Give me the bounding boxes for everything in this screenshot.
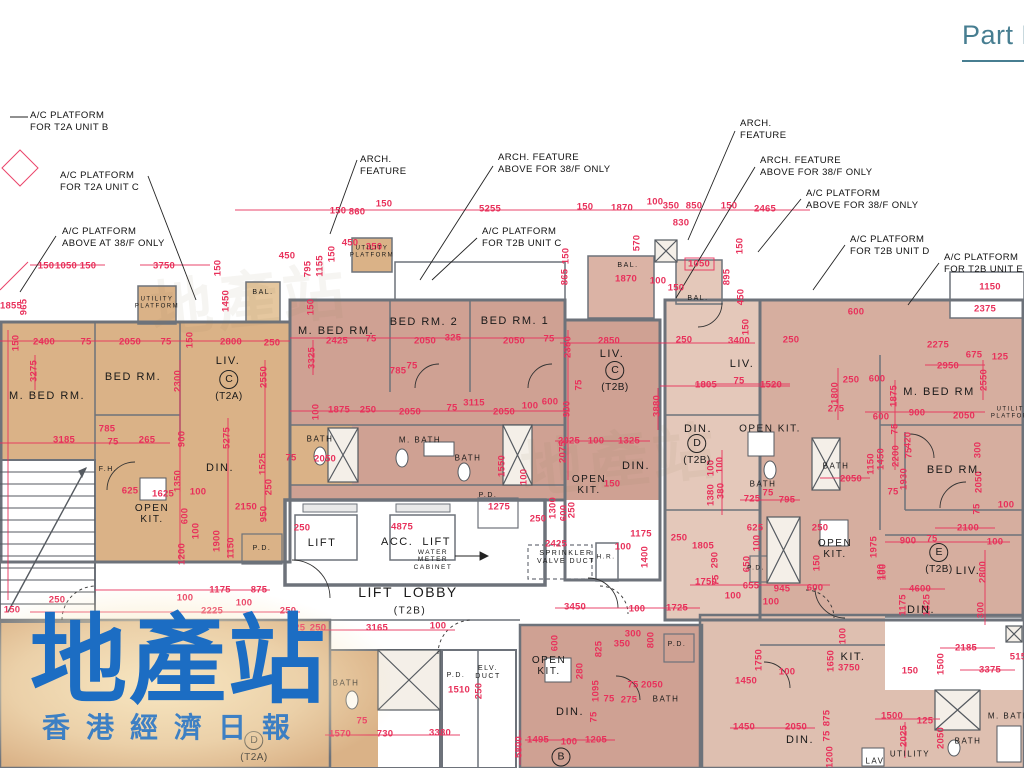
dimension-label: 300 (625, 629, 641, 640)
room-label: M. BED RM. (9, 390, 85, 402)
dimension-label: 1400 (640, 546, 651, 568)
dimension-label: 1520 (760, 380, 782, 391)
dimension-label: 1510 (448, 685, 470, 696)
dimension-label: 1450 (876, 448, 887, 470)
annotation-callout: A/C PLATFORM FOR T2A UNIT C (60, 170, 139, 194)
dimension-label: 2050 (493, 407, 515, 418)
floor-plan-page: 1501050150375015045014501855965150795115… (0, 0, 1024, 768)
dimension-label: 2025 (558, 436, 580, 447)
room-label: H.R. (597, 553, 616, 560)
dimension-label: 600 (180, 508, 191, 524)
dimension-label: 1095 (591, 680, 602, 702)
room-label: BAL. (687, 295, 708, 303)
room-label: SPRINKLER VALVE DUCT (537, 550, 595, 566)
watermark-title: 地產站 (30, 612, 327, 709)
dimension-label: 75 (890, 424, 901, 435)
annotation-callout: A/C PLATFORM ABOVE FOR 38/F ONLY (806, 188, 918, 212)
annotation-callout: A/C PLATFORM ABOVE AT 38/F ONLY (62, 226, 165, 250)
dimension-label: 75 (734, 376, 745, 387)
unit-mark-B: B (552, 748, 571, 767)
room-label: DIN. (206, 462, 234, 474)
room-label: DIN. (907, 604, 935, 616)
dimension-label: 350 (663, 201, 679, 212)
dimension-label: 1870 (615, 274, 637, 285)
dimension-label: 75 (604, 694, 615, 705)
dimension-label: 100 (561, 737, 577, 748)
dimension-label: 250 (783, 335, 799, 346)
dimension-label: 75 (589, 712, 600, 723)
dimension-label: 3750 (838, 663, 860, 674)
dimension-label: 2050 (785, 722, 807, 733)
dimension-label: 250 (567, 502, 578, 518)
room-label: DIN. (786, 734, 814, 746)
dimension-label: 1500 (936, 653, 947, 675)
room-label: BATH (307, 436, 334, 445)
dimension-label: 3115 (463, 398, 484, 409)
dimension-label: 2550 (259, 366, 270, 388)
dimension-label: 2950 (937, 361, 959, 372)
room-label: M. BATH (399, 437, 441, 446)
dimension-label: 825 (594, 641, 605, 657)
dimension-label: 1875 (328, 405, 350, 416)
dimension-label: 250 (474, 683, 485, 699)
dimension-label: 785 (99, 424, 115, 435)
dimension-label: 150 (561, 248, 572, 264)
dimension-label: 965 (19, 299, 30, 315)
dimension-label: 75 (286, 453, 297, 464)
room-label: BED RM. (927, 464, 983, 476)
dimension-label: 420 (903, 432, 914, 448)
dimension-label: 350 (614, 639, 630, 650)
dimension-label: 2100 (957, 523, 979, 534)
dimension-label: 1175 (630, 529, 651, 540)
dimension-label: 2025 (899, 725, 910, 747)
dimension-label: 100 (311, 404, 322, 420)
room-label: BAL. (617, 262, 638, 270)
dimension-label: 3185 (53, 435, 75, 446)
dimension-label: 450 (279, 251, 295, 262)
room-label: OPEN KIT. (818, 538, 852, 560)
dimension-label: 1350 (173, 470, 184, 492)
unit-mark-E: E(T2B) (925, 543, 953, 575)
dimension-label: 900 (900, 536, 916, 547)
dimension-label: 3450 (564, 602, 586, 613)
dimension-label: 100 (629, 604, 645, 615)
dimension-label: 2185 (955, 643, 977, 654)
dimension-label: 4875 (391, 522, 413, 533)
dimension-label: 1380 (706, 484, 717, 506)
unit-type: (T2A) (215, 391, 243, 402)
dimension-label: 785 (390, 366, 406, 377)
dimension-label: 265 (139, 435, 155, 446)
dimension-label: 100 (519, 469, 530, 485)
dimension-label: 600 (807, 583, 823, 594)
dimension-label: 75 (972, 504, 983, 515)
unit-letter: E (930, 543, 949, 562)
dimension-label: 150 (376, 199, 392, 210)
dimension-label: 860 (349, 207, 365, 218)
dimension-label: 2150 (235, 502, 257, 513)
room-label: BED RM. 2 (390, 316, 459, 328)
room-label: (T2B) (394, 605, 427, 616)
dimension-label: 945 (774, 584, 790, 595)
room-label: UTILITY PLATFORM (135, 296, 179, 309)
dimension-label: 150 (668, 283, 684, 294)
unit-letter: C (220, 370, 239, 389)
unit-type: (T2B) (601, 382, 629, 393)
dimension-label: 275 (828, 404, 844, 415)
dimension-label: 450 (736, 289, 747, 305)
dimension-label: 2465 (754, 204, 776, 215)
room-label: OPEN KIT. (532, 655, 566, 677)
dimension-label: 75 (628, 680, 639, 691)
dimension-label: 1200 (825, 746, 836, 768)
room-label: LIV. (600, 348, 625, 360)
dimension-label: 800 (646, 632, 657, 648)
room-label: M. BED RM. (298, 325, 374, 337)
dimension-label: 100 (430, 621, 446, 632)
dimension-label: 600 (869, 374, 885, 385)
room-label: BATH (653, 696, 680, 705)
dimension-label: 150 (185, 332, 196, 348)
room-label: P.D. (668, 641, 687, 649)
room-label: BATH (455, 455, 482, 464)
room-label: ACC. LIFT (381, 536, 451, 548)
dimension-label: 100 (838, 628, 849, 644)
dimension-label: 1900 (212, 530, 223, 552)
dimension-label: 100 (752, 535, 763, 551)
room-label: LIV. (730, 358, 755, 370)
dimension-label: 2425 (545, 539, 567, 550)
dimension-label: 150 (741, 319, 752, 335)
dimension-label: 75 (904, 448, 915, 459)
part-label: Part F (962, 20, 1024, 62)
dimension-label: 1205 (585, 735, 607, 746)
dimension-label: 795 (779, 495, 795, 506)
room-label: BATH (955, 738, 982, 747)
dimension-label: 1275 (488, 502, 510, 513)
unit-type: (T2B) (683, 455, 711, 466)
dimension-label: 1450 (221, 290, 232, 312)
dimension-label: 250 (264, 479, 275, 495)
room-label: BAL. (252, 289, 273, 297)
annotation-callout: A/C PLATFORM FOR T2B UNIT C (482, 226, 562, 250)
dimension-label: 150 (330, 206, 346, 217)
dimension-label: 5800 (514, 736, 525, 758)
dimension-label: 3400 (728, 336, 750, 347)
annotation-callout: ARCH. FEATURE ABOVE FOR 38/F ONLY (498, 152, 610, 176)
dimension-label: 250 (530, 514, 546, 525)
dimension-label: 1525 (258, 453, 269, 475)
room-label: UTILITY PLATFORM (991, 406, 1024, 419)
room-label: LIV. (956, 565, 981, 577)
dimension-label: 280 (575, 663, 586, 679)
dimension-label: 2800 (220, 337, 242, 348)
dimension-label: 250 (294, 523, 310, 534)
dimension-label: 900 (909, 408, 925, 419)
dimension-label: 100 (987, 537, 1003, 548)
room-label: BATH (750, 481, 777, 490)
dimension-label: 725 (744, 494, 760, 505)
dimension-label: 1650 (826, 650, 837, 672)
dimension-label: 1975 (869, 536, 880, 558)
dimension-label: 100 (650, 276, 666, 287)
dimension-label: 75 (822, 731, 833, 742)
room-label: ELV. DUCT (475, 665, 500, 681)
dimension-label: 600 (550, 635, 561, 651)
dimension-label: 625 (747, 523, 763, 534)
dimension-label: 250 (264, 338, 280, 349)
dimension-label: 830 (673, 218, 689, 229)
dimension-label: 900 (177, 431, 188, 447)
dimension-label: 1805 (695, 380, 717, 391)
dimension-label: 850 (686, 201, 702, 212)
annotation-callout: A/C PLATFORM FOR T2B UNIT D (850, 234, 930, 258)
dimension-label: 2050 (119, 337, 141, 348)
dimension-label: 950 (259, 506, 270, 522)
dimension-label: 2050 (936, 727, 947, 749)
dimension-label: 150 (735, 238, 746, 254)
room-label: BATH (823, 463, 850, 472)
dimension-label: 2850 (598, 336, 620, 347)
dimension-label: 1300 (548, 497, 559, 519)
dimension-label: 900 (562, 401, 573, 417)
dimension-label: 100 (522, 401, 538, 412)
watermark-subtitle: 香港經濟日報 (42, 714, 306, 742)
room-label: UTILITY PLATFORM (350, 245, 394, 258)
dimension-label: 1495 (527, 735, 549, 746)
annotation-callout: ARCH. FEATURE (740, 118, 786, 142)
dimension-label: 5255 (479, 204, 501, 215)
dimension-label: 1200 (177, 543, 188, 565)
dimension-label: 675 (966, 350, 982, 361)
room-label: LIFT (308, 537, 337, 549)
dimension-label: 2050 (503, 336, 525, 347)
dimension-label: 1150 (979, 282, 1000, 293)
dimension-label: 75 (888, 487, 899, 498)
dimension-label: 1625 (152, 489, 174, 500)
dimension-label: 2400 (33, 337, 55, 348)
dimension-label: 1875 (889, 385, 900, 407)
dimension-label: 325 (445, 333, 461, 344)
dimension-label: 100 (998, 500, 1014, 511)
dimension-label: 300 (973, 442, 984, 458)
annotation-callout: ARCH. FEATURE (360, 154, 406, 178)
dimension-label: 875 (822, 710, 833, 726)
dimension-label: 100 (191, 523, 202, 539)
dimension-label: 2350 (563, 336, 574, 358)
dimension-label: 250 (360, 405, 376, 416)
unit-mark-D: D(T2B) (683, 434, 711, 466)
dimension-label: 1450 (733, 722, 755, 733)
dimension-label: 150 (604, 479, 620, 490)
dimension-label: 1050 (688, 259, 710, 270)
dimension-label: 75 (544, 334, 555, 345)
room-label: M. BATH (988, 713, 1024, 722)
room-label: OPEN KIT. (572, 474, 606, 496)
dimension-label: 100 (588, 436, 604, 447)
room-label: LIV. (216, 355, 241, 367)
dimension-label: 150 (306, 299, 317, 315)
dimension-label: 250 (671, 533, 687, 544)
room-label: DIN. (556, 706, 584, 718)
dimension-label: 865 (560, 269, 571, 285)
room-label: BED RM. (105, 371, 161, 383)
dimension-label: 3750 (153, 261, 175, 272)
dimension-label: 1750 (754, 649, 765, 671)
dimension-label: 75 (447, 403, 458, 414)
dimension-label: 250 (812, 523, 828, 534)
dimension-label: 150 (38, 261, 54, 272)
dimension-label: 1450 (735, 676, 757, 687)
dimension-label: 3880 (652, 395, 663, 417)
dimension-label: 2375 (974, 304, 996, 315)
room-label: P.D. (479, 492, 498, 500)
dimension-label: 125 (992, 352, 1008, 363)
dimension-label: 100 (615, 542, 631, 553)
dimension-label: 625 (122, 486, 138, 497)
dimension-label: 1155 (315, 255, 326, 276)
dimension-label: 2050 (641, 680, 663, 691)
dimension-label: 2050 (953, 411, 975, 422)
dimension-label: 300 (976, 602, 987, 618)
dimension-label: 75 (574, 380, 585, 391)
unit-letter: B (552, 748, 571, 767)
unit-letter: C (606, 361, 625, 380)
room-label: BED RM. 1 (481, 315, 550, 327)
dimension-label: 150 (80, 261, 96, 272)
room-label: P.D. (253, 545, 272, 553)
dimension-label: 75 (161, 337, 172, 348)
dimension-label: 2550 (979, 369, 990, 391)
dimension-label: 100 (190, 487, 206, 498)
dimension-label: 150 (11, 335, 22, 351)
dimension-label: 1150 (226, 537, 237, 558)
dimension-label: 1800 (830, 382, 841, 404)
dimension-label: 795 (303, 261, 314, 277)
dimension-label: 1500 (881, 711, 903, 722)
dimension-label: 1150 (866, 453, 877, 474)
dimension-label: 600 (848, 307, 864, 318)
room-label: M. BED RM (903, 386, 975, 398)
room-label: UTILITY (890, 751, 930, 760)
dimension-label: 150 (577, 202, 593, 213)
dimension-label: 380 (716, 483, 727, 499)
dimension-label: 150 (902, 666, 918, 677)
dimension-label: 2050 (414, 336, 436, 347)
dimension-label: 125 (917, 716, 933, 727)
dimension-label: 150 (721, 201, 737, 212)
dimension-label: 2050 (399, 407, 421, 418)
dimension-label: 1550 (497, 455, 508, 477)
dimension-label: 75 (108, 437, 119, 448)
dimension-label: 100 (779, 667, 795, 678)
dimension-label: 100 (878, 564, 889, 580)
dimension-label: 150 (327, 246, 338, 262)
dimension-label: 1725 (666, 603, 688, 614)
dimension-label: 75 (407, 361, 418, 372)
annotation-callout: A/C PLATFORM FOR T2B UNIT E (944, 252, 1023, 276)
dimension-label: 895 (722, 269, 733, 285)
dimension-label: 1325 (618, 436, 640, 447)
room-label: WATER METER CABINET (414, 549, 453, 571)
dimension-label: 1805 (692, 541, 714, 552)
dimension-label: 4600 (909, 584, 931, 595)
room-label: P.D. (747, 564, 765, 571)
dimension-label: 100 (647, 197, 663, 208)
unit-mark-C: C(T2A) (215, 370, 243, 402)
dimension-label: 75 (81, 337, 92, 348)
room-label: OPEN KIT. (739, 423, 801, 434)
dimension-label: 1050 (55, 261, 77, 272)
dimension-label: 2050 (840, 474, 862, 485)
annotation-callout: A/C PLATFORM FOR T2A UNIT B (30, 110, 109, 134)
dimension-label: 250 (843, 375, 859, 386)
unit-mark-C: C(T2B) (601, 361, 629, 393)
dimension-label: 150 (213, 260, 224, 276)
dimension-label: 3275 (29, 360, 40, 382)
dimension-label: 2300 (173, 370, 184, 392)
dimension-label: 600 (873, 412, 889, 423)
dimension-label: 100 (763, 597, 779, 608)
dimension-label: 290 (710, 552, 721, 568)
dimension-label: 570 (632, 235, 643, 251)
dimension-label: 1750 (695, 577, 717, 588)
dimension-label: 275 (621, 695, 637, 706)
dimension-label: 2275 (927, 340, 949, 351)
room-label: LAV (865, 758, 884, 767)
dimension-label: 100 (725, 591, 741, 602)
dimension-label: 3375 (979, 665, 1001, 676)
dimension-label: 515 (1010, 652, 1024, 663)
dimension-label: 2050 (314, 454, 336, 465)
room-label: F.H. (99, 466, 117, 474)
dimension-label: 3325 (307, 347, 318, 369)
annotation-callout: ARCH. FEATURE ABOVE FOR 38/F ONLY (760, 155, 872, 179)
dimension-label: 3380 (429, 728, 451, 739)
dimension-label: 250 (676, 335, 692, 346)
dimension-label: 5275 (222, 427, 233, 449)
dimension-label: 1930 (899, 468, 910, 490)
room-label: OPEN KIT. (135, 503, 169, 525)
room-label: DIN. (622, 460, 650, 472)
room-label: P.D. (447, 672, 466, 680)
dimension-label: 655 (743, 581, 759, 592)
dimension-label: 2200 (891, 445, 902, 467)
dimension-label: 1870 (611, 203, 633, 214)
dimension-label: 600 (542, 397, 558, 408)
unit-letter: D (688, 434, 707, 453)
room-label: KIT. (841, 651, 866, 663)
unit-type: (T2B) (925, 564, 953, 575)
